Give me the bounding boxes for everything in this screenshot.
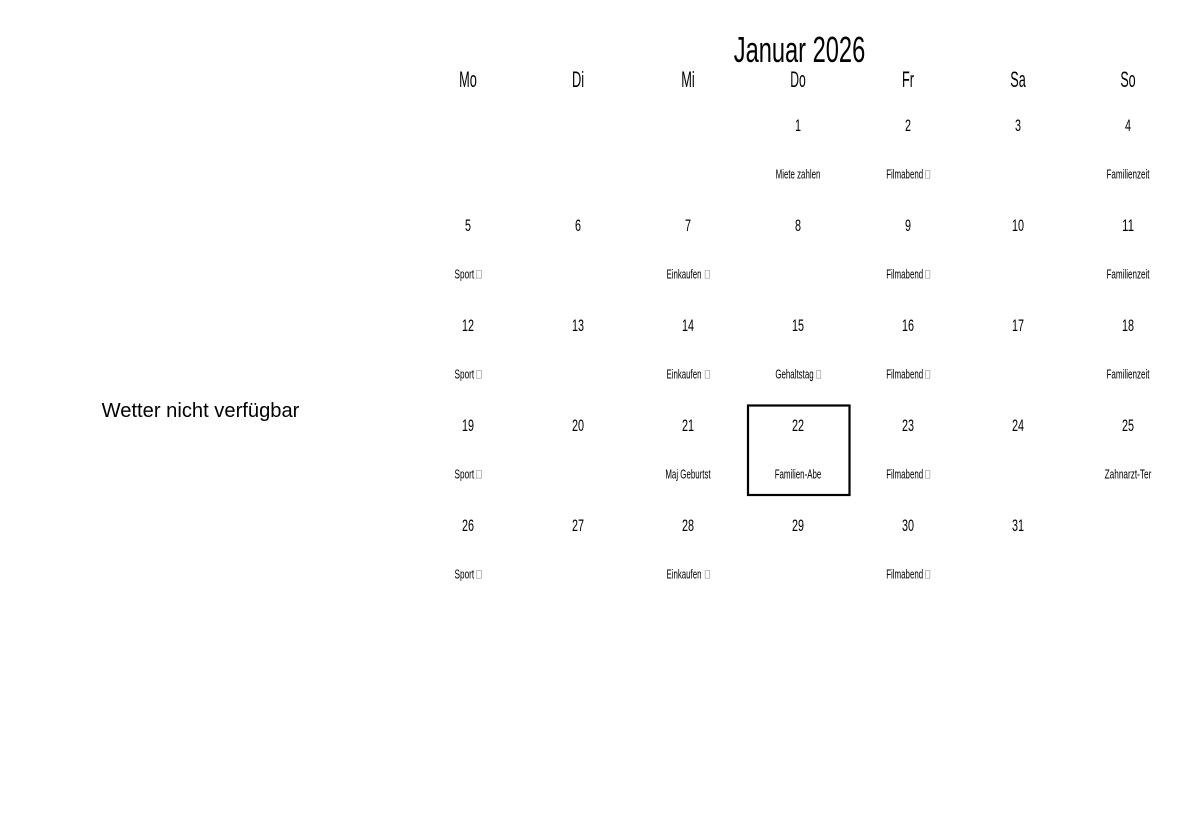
svg-text:Sport: Sport [455,467,475,481]
svg-text:19: 19 [462,416,474,435]
svg-text:Filmabend: Filmabend [886,167,923,181]
svg-text:23: 23 [902,416,914,435]
svg-text:Maj Geburtst: Maj Geburtst [665,467,711,481]
svg-text:12: 12 [462,316,474,335]
svg-text:Mo: Mo [459,67,477,92]
svg-text:11: 11 [1122,216,1134,235]
svg-text:Wetter nicht verfügbar: Wetter nicht verfügbar [102,399,300,422]
svg-text:30: 30 [902,516,914,535]
svg-text:16: 16 [902,316,914,335]
svg-text:2: 2 [905,116,911,135]
svg-text:Zahnarzt-Ter: Zahnarzt-Ter [1105,467,1152,481]
svg-text:Di: Di [572,67,584,92]
svg-text:13: 13 [572,316,584,335]
svg-text:24: 24 [1012,416,1024,435]
svg-text:Sport: Sport [455,267,475,281]
svg-text:Mi: Mi [681,67,695,92]
svg-text:Sa: Sa [1010,67,1026,92]
svg-text:Familienzeit: Familienzeit [1106,267,1149,281]
svg-text:Einkaufen: Einkaufen [667,567,702,581]
svg-text:4: 4 [1125,116,1131,135]
svg-text:22: 22 [792,416,804,435]
svg-text:15: 15 [792,316,804,335]
svg-text:Filmabend: Filmabend [886,467,923,481]
svg-text:20: 20 [572,416,584,435]
svg-text:6: 6 [575,216,581,235]
svg-text:9: 9 [905,216,911,235]
svg-text:7: 7 [685,216,691,235]
svg-text:1: 1 [795,116,801,135]
svg-text:Fr: Fr [902,67,914,92]
svg-text:28: 28 [682,516,694,535]
svg-text:Einkaufen: Einkaufen [667,367,702,381]
svg-text:31: 31 [1012,516,1024,535]
svg-text:8: 8 [795,216,801,235]
svg-text:Sport: Sport [455,567,475,581]
svg-text:17: 17 [1012,316,1024,335]
svg-text:25: 25 [1122,416,1134,435]
svg-text:Do: Do [790,67,806,92]
svg-text:Filmabend: Filmabend [886,367,923,381]
svg-text:14: 14 [682,316,694,335]
svg-text:Gehaltstag: Gehaltstag [775,367,813,381]
svg-text:Einkaufen: Einkaufen [667,267,702,281]
svg-text:5: 5 [465,216,471,235]
svg-text:10: 10 [1012,216,1024,235]
svg-text:Familienzeit: Familienzeit [1106,367,1149,381]
svg-text:Familienzeit: Familienzeit [1106,167,1149,181]
svg-text:Filmabend: Filmabend [886,267,923,281]
svg-text:Sport: Sport [455,367,475,381]
svg-text:So: So [1120,67,1135,92]
svg-text:Januar 2026: Januar 2026 [734,30,866,70]
svg-text:Filmabend: Filmabend [886,567,923,581]
svg-text:21: 21 [682,416,694,435]
svg-text:Miete zahlen: Miete zahlen [776,167,821,181]
svg-text:29: 29 [792,516,804,535]
svg-text:27: 27 [572,516,584,535]
svg-text:3: 3 [1015,116,1021,135]
svg-text:Familien-Abe: Familien-Abe [775,467,822,481]
svg-text:26: 26 [462,516,474,535]
svg-text:18: 18 [1122,316,1134,335]
